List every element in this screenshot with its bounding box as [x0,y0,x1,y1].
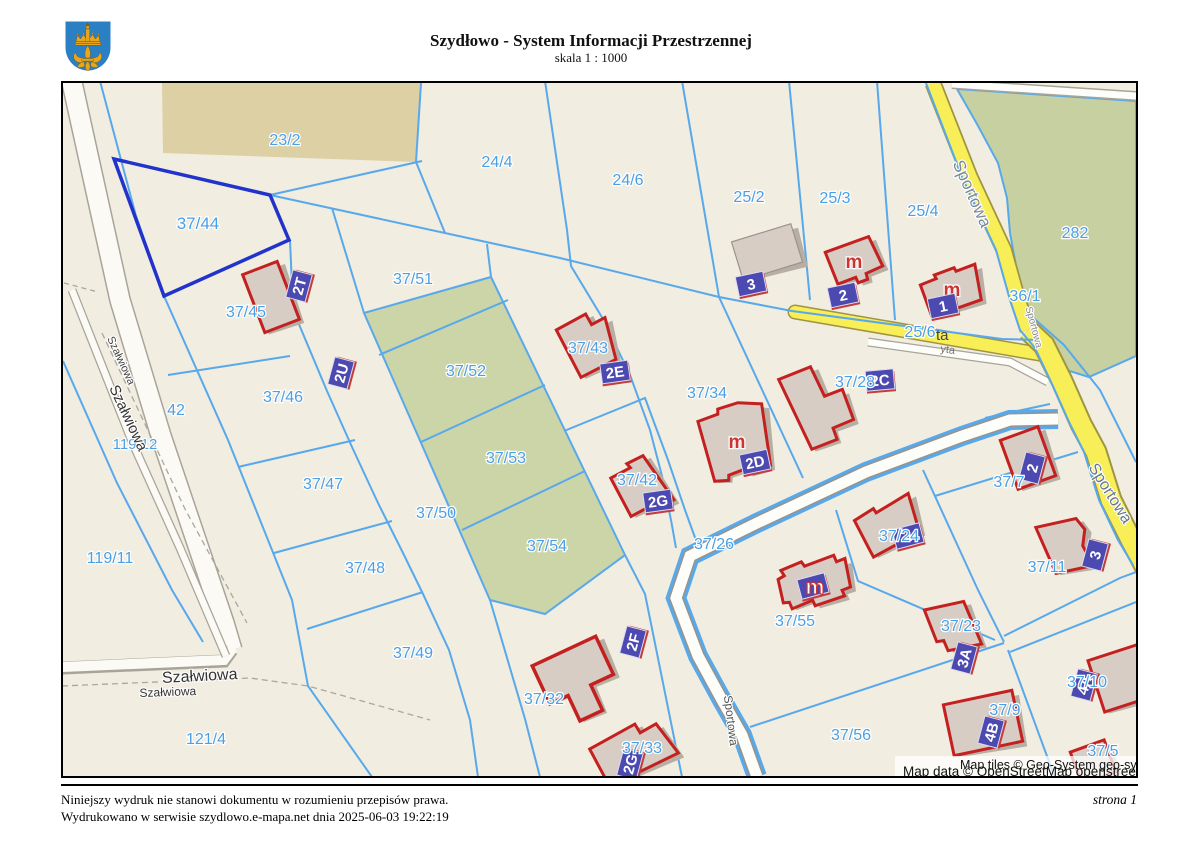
svg-text:37/24: 37/24 [879,528,919,545]
svg-text:37/44: 37/44 [177,214,220,233]
svg-text:m: m [806,576,825,599]
svg-text:37/32: 37/32 [524,691,564,708]
svg-text:2G: 2G [647,492,669,512]
svg-text:Szałwiowa: Szałwiowa [139,684,196,700]
svg-text:37/53: 37/53 [486,450,526,467]
svg-text:23/2: 23/2 [269,132,300,149]
svg-text:37/10: 37/10 [1067,674,1107,691]
svg-text:Map data © OpenStreetMap opens: Map data © OpenStreetMap openstreetma [903,764,1136,776]
svg-text:282: 282 [1062,225,1089,242]
svg-text:m: m [729,432,746,453]
svg-text:37/33: 37/33 [622,740,662,757]
svg-text:37/47: 37/47 [303,476,343,493]
svg-text:37/34: 37/34 [687,385,727,402]
svg-text:m: m [846,252,863,273]
svg-text:25/6: 25/6 [904,324,935,341]
svg-text:37/50: 37/50 [416,505,456,522]
svg-text:37/55: 37/55 [775,613,815,630]
svg-text:yta: yta [940,343,957,357]
svg-text:37/54: 37/54 [527,538,567,555]
svg-text:121/4: 121/4 [186,731,226,748]
svg-text:25/3: 25/3 [819,190,850,207]
svg-text:37/56: 37/56 [831,727,871,744]
svg-text:25/2: 25/2 [733,189,764,206]
svg-text:24/4: 24/4 [481,154,512,171]
svg-text:37/7: 37/7 [993,474,1024,491]
svg-text:37/23: 37/23 [941,618,981,635]
svg-text:37/46: 37/46 [263,389,303,406]
svg-text:37/26: 37/26 [694,536,734,553]
svg-text:37/9: 37/9 [989,702,1020,719]
svg-text:37/51: 37/51 [393,271,433,288]
svg-text:37/48: 37/48 [345,560,385,577]
svg-text:37/52: 37/52 [446,363,486,380]
svg-text:37/42: 37/42 [617,472,657,489]
svg-text:37/28: 37/28 [835,374,875,391]
svg-text:ta: ta [936,327,949,344]
svg-text:119/11: 119/11 [87,550,134,567]
svg-text:37/49: 37/49 [393,645,433,662]
svg-text:37/43: 37/43 [568,340,608,357]
svg-text:24/6: 24/6 [612,172,643,189]
svg-text:25/4: 25/4 [907,203,938,220]
svg-text:2E: 2E [605,363,626,382]
svg-text:36/1: 36/1 [1009,288,1040,305]
svg-text:42: 42 [167,402,185,419]
svg-text:37/45: 37/45 [226,304,266,321]
svg-text:37/11: 37/11 [1028,559,1067,576]
